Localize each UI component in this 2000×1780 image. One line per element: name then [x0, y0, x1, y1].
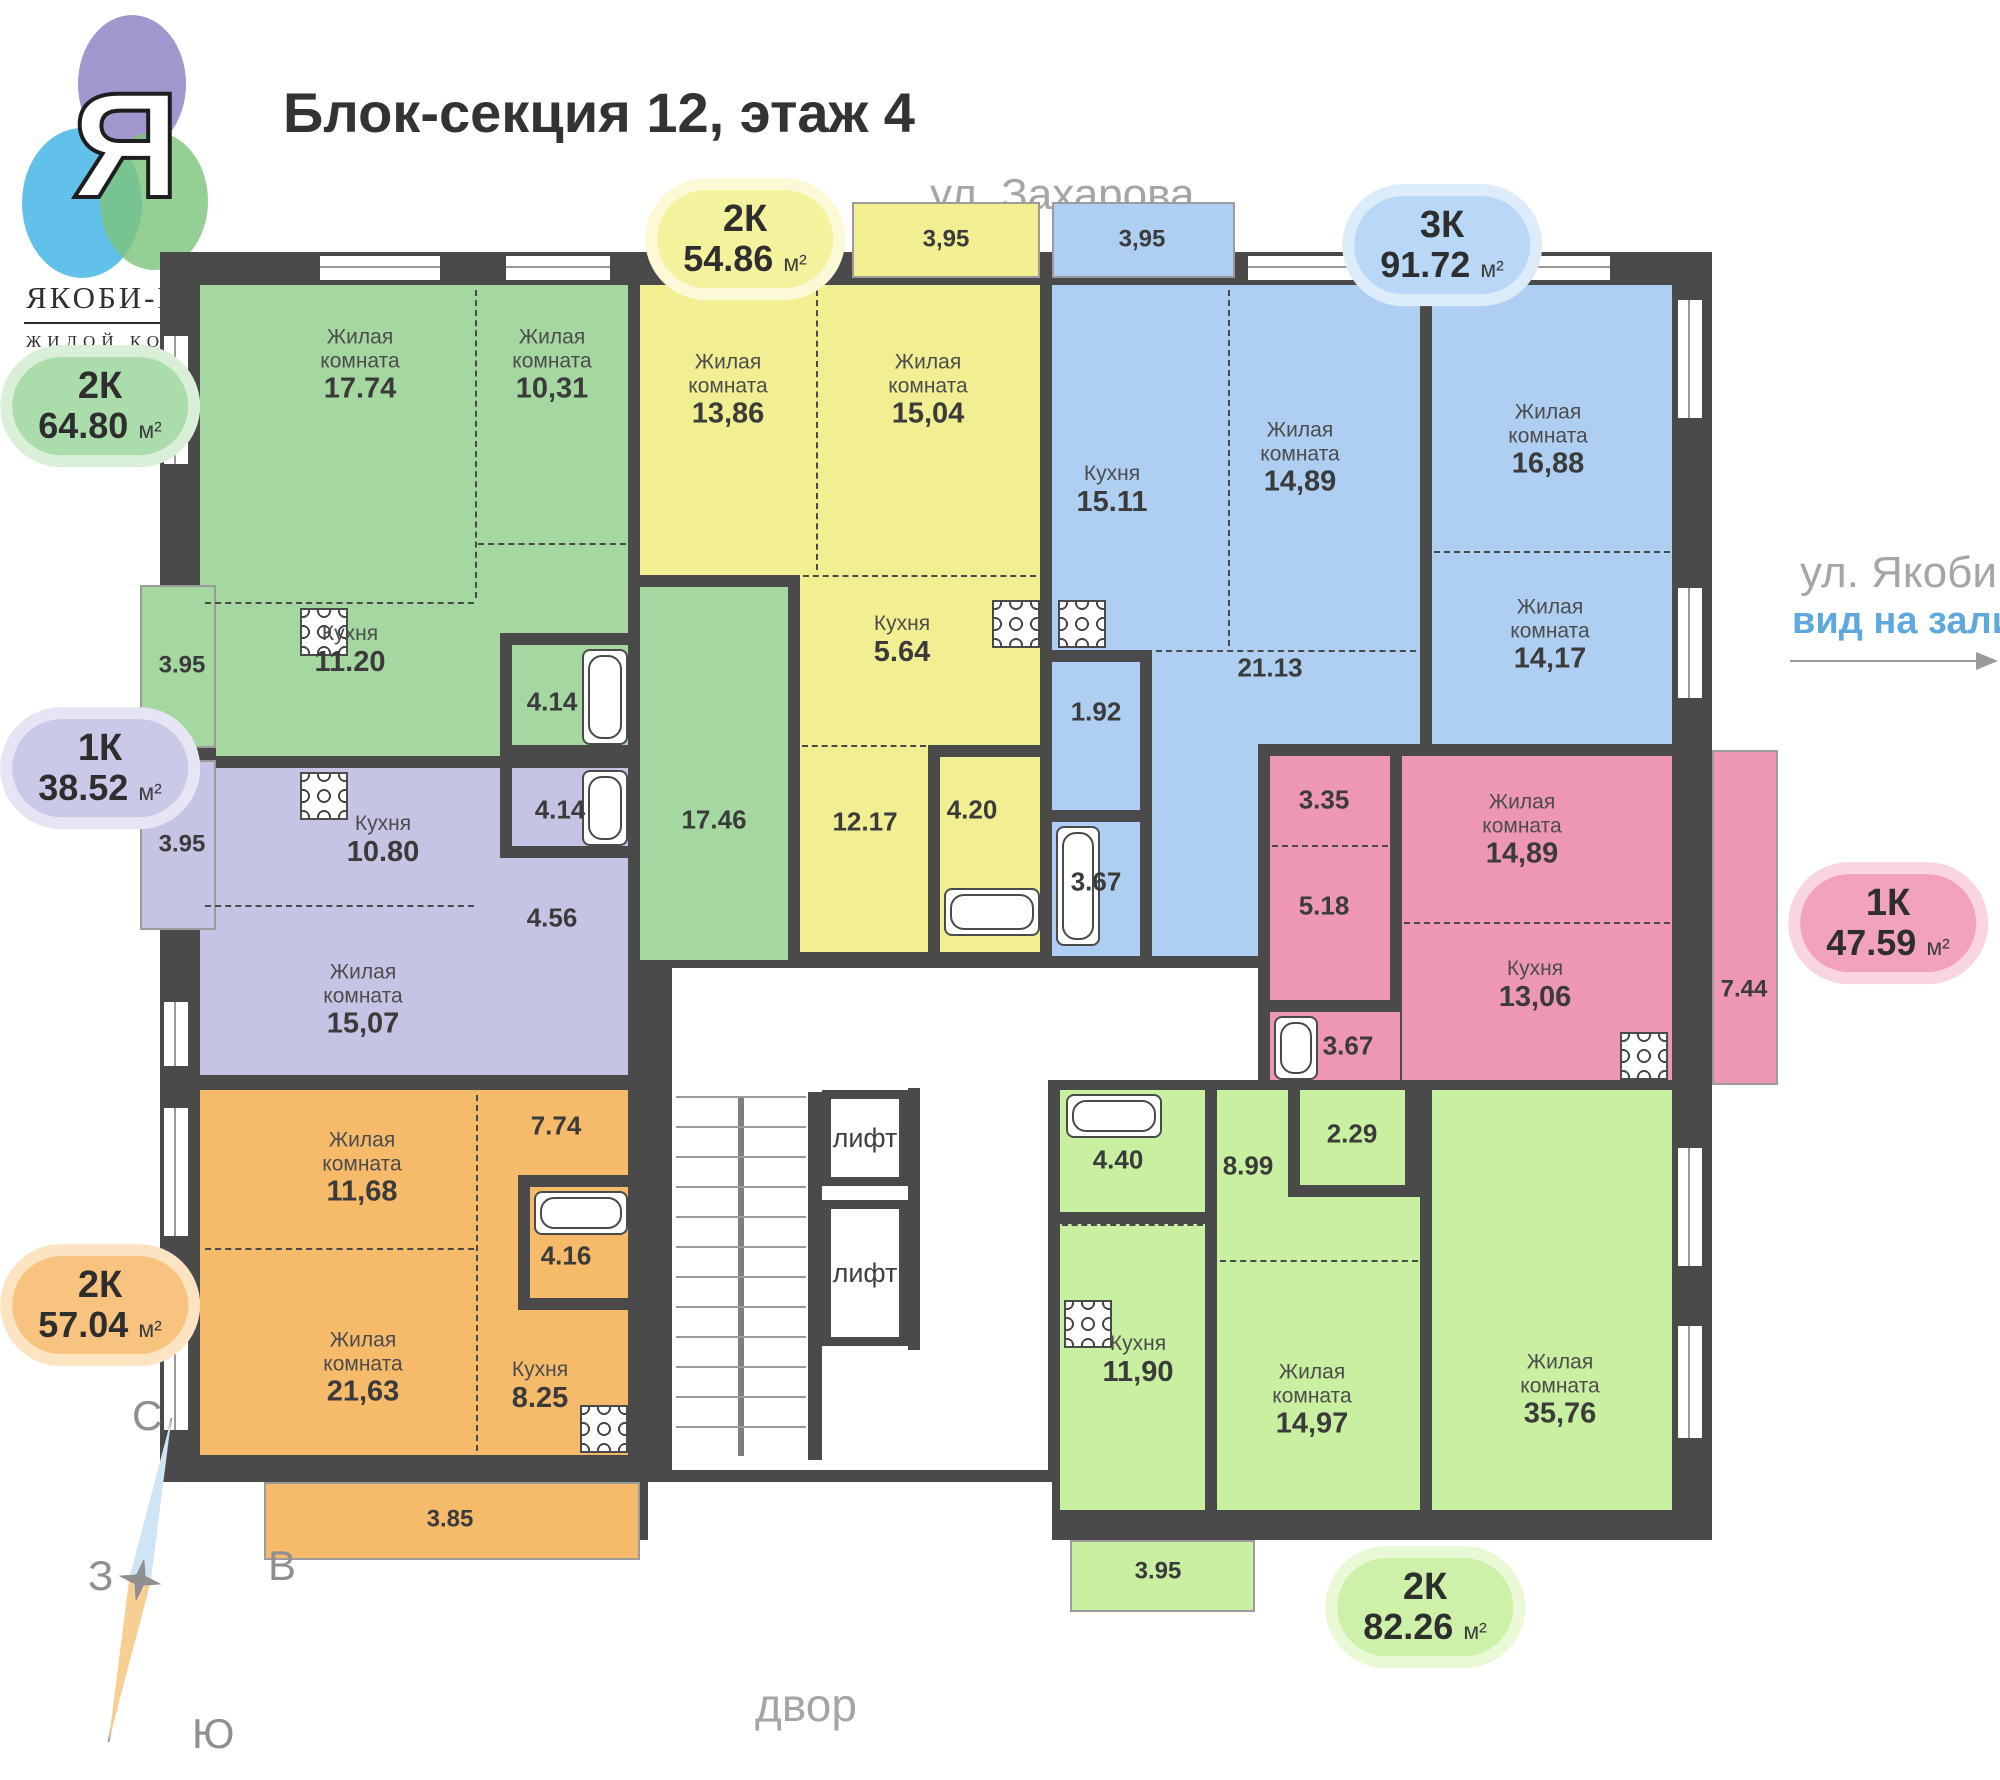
bathtub-icon — [582, 770, 628, 846]
room-label: 2.29 — [1327, 1119, 1378, 1148]
room-label: Кухня8.25 — [512, 1358, 568, 1414]
stove-icon — [580, 1405, 628, 1453]
badge-1k-38-52[interactable]: 1К38.52 м² — [12, 719, 188, 817]
divider — [1404, 922, 1670, 924]
wall-stair-elevator — [808, 1092, 822, 1460]
divider — [1228, 290, 1230, 646]
bathtub-icon — [582, 649, 628, 745]
room-label: Жилая комната15,07 — [323, 960, 402, 1040]
divider — [205, 602, 474, 604]
room-label: Жилая комната14,97 — [1272, 1360, 1351, 1440]
badge-1k-47-59[interactable]: 1К47.59 м² — [1800, 874, 1976, 972]
room-label: 3.95 — [159, 832, 206, 859]
room-label: 3.85 — [427, 1507, 474, 1534]
badge-2k-57-04[interactable]: 2К57.04 м² — [12, 1256, 188, 1354]
divider — [802, 745, 926, 747]
room-label: 8.99 — [1223, 1151, 1274, 1180]
stove-icon — [992, 600, 1040, 648]
room-label: 3.35 — [1299, 785, 1350, 814]
room-label: 4.14 — [527, 687, 578, 716]
compass: С З В Ю — [60, 1380, 340, 1780]
room-label: Кухня11,90 — [1103, 1332, 1174, 1388]
room-lightgreen-living-2[interactable] — [1432, 1090, 1672, 1510]
elevator-2-label: лифт — [833, 1258, 898, 1289]
room-lightgreen-hall-b[interactable] — [1217, 1197, 1420, 1260]
divider — [476, 1095, 478, 1451]
room-label: Жилая комната15,04 — [888, 350, 967, 430]
room-label: 7.44 — [1721, 977, 1768, 1004]
room-label: 3.67 — [1323, 1031, 1374, 1060]
divider — [1220, 1260, 1418, 1262]
room-pink-hall[interactable] — [1270, 845, 1390, 1000]
room-label: 4.16 — [541, 1241, 592, 1270]
room-green-corridor[interactable] — [640, 587, 788, 960]
page-title: Блок-секция 12, этаж 4 — [283, 80, 915, 145]
window — [164, 1108, 188, 1236]
street-label-right: ул. Якоби — [1800, 548, 1997, 598]
divider — [205, 905, 474, 907]
room-label: 4.56 — [527, 903, 578, 932]
room-blue-wc[interactable] — [1052, 662, 1140, 810]
divider — [205, 1248, 474, 1250]
compass-east: В — [268, 1542, 296, 1590]
room-label: 3,95 — [923, 227, 970, 254]
corridor-vestibule — [672, 968, 1258, 1080]
divider — [645, 575, 1036, 577]
room-label: 1.92 — [1071, 697, 1122, 726]
wall-elevator-right — [908, 1088, 920, 1350]
balcony-pink — [1712, 750, 1778, 1085]
divider — [478, 543, 626, 545]
room-label: Кухня13,06 — [1499, 957, 1572, 1013]
compass-south: Ю — [192, 1710, 234, 1758]
divider — [816, 290, 818, 570]
elevator-1: лифт — [822, 1090, 908, 1186]
divider — [475, 290, 477, 598]
view-label-right: вид на залив — [1792, 600, 2000, 643]
bathtub-icon — [944, 888, 1040, 936]
room-label: 5.18 — [1299, 891, 1350, 920]
view-arrow — [1790, 660, 1980, 662]
room-label: 12.17 — [832, 807, 897, 836]
entrance-porch — [648, 1482, 1052, 1640]
room-label: Кухня10.80 — [347, 812, 420, 868]
bathtub-icon — [1274, 1016, 1318, 1080]
room-label: Кухня15.11 — [1077, 462, 1148, 518]
room-label: 21.13 — [1237, 653, 1302, 682]
room-label: Жилая комната13,86 — [688, 350, 767, 430]
room-yellow-living-2[interactable] — [816, 285, 1040, 575]
room-orange-hall-ext[interactable] — [476, 1175, 518, 1310]
window — [1678, 1148, 1702, 1266]
bathtub-icon — [534, 1191, 628, 1235]
room-label: Кухня5.64 — [874, 612, 930, 668]
room-label: Жилая комната11,68 — [322, 1128, 401, 1208]
room-label: Жилая комната35,76 — [1520, 1350, 1599, 1430]
room-label: 4.14 — [535, 795, 586, 824]
room-label: Жилая комната16,88 — [1508, 400, 1587, 480]
room-label: Кухня11.20 — [315, 622, 386, 678]
room-label: 7.74 — [531, 1111, 582, 1140]
room-label: 3.67 — [1071, 867, 1122, 896]
room-label: 4.40 — [1093, 1145, 1144, 1174]
room-label: Жилая комната17.74 — [320, 325, 399, 405]
room-label: 17.46 — [681, 805, 746, 834]
elevator-2: лифт — [822, 1200, 908, 1346]
room-label: Жилая комната14,89 — [1260, 418, 1339, 498]
yard-label: двор — [755, 1678, 857, 1732]
room-label: 3,95 — [1119, 227, 1166, 254]
view-arrow-head — [1976, 652, 1998, 670]
window — [1678, 588, 1702, 698]
room-label: 3.95 — [1135, 1559, 1182, 1586]
window — [1248, 256, 1360, 280]
window — [1678, 1326, 1702, 1438]
window — [320, 256, 440, 280]
room-label: Жилая комната10,31 — [512, 325, 591, 405]
room-label: 3.95 — [159, 653, 206, 680]
stove-icon — [1620, 1032, 1668, 1080]
room-label: Жилая комната14,89 — [1482, 790, 1561, 870]
badge-2k-82-26[interactable]: 2К82.26 м² — [1337, 1558, 1513, 1656]
room-label: Жилая комната14,17 — [1510, 595, 1589, 675]
room-yellow-living-1[interactable] — [640, 285, 816, 575]
bathtub-icon — [1066, 1094, 1162, 1138]
logo-letter: Я — [72, 70, 180, 220]
room-yellow-corridor[interactable] — [800, 745, 928, 952]
badge-2k-54-86[interactable]: 2К54.86 м² — [657, 190, 833, 288]
badge-2k-64-80[interactable]: 2К64.80 м² — [12, 357, 188, 455]
elevator-1-label: лифт — [833, 1123, 898, 1154]
window — [164, 1002, 188, 1066]
window — [1678, 300, 1702, 418]
staircase — [676, 1096, 806, 1456]
stove-icon — [1058, 600, 1106, 648]
divider — [1434, 551, 1670, 553]
window — [506, 256, 610, 280]
divider — [1062, 1224, 1203, 1226]
room-label: 4.20 — [947, 795, 998, 824]
divider — [1272, 845, 1388, 847]
stove-icon — [300, 772, 348, 820]
badge-3k-91-72[interactable]: 3К91.72 м² — [1354, 196, 1530, 294]
room-blue-hall-b[interactable] — [1152, 650, 1258, 956]
